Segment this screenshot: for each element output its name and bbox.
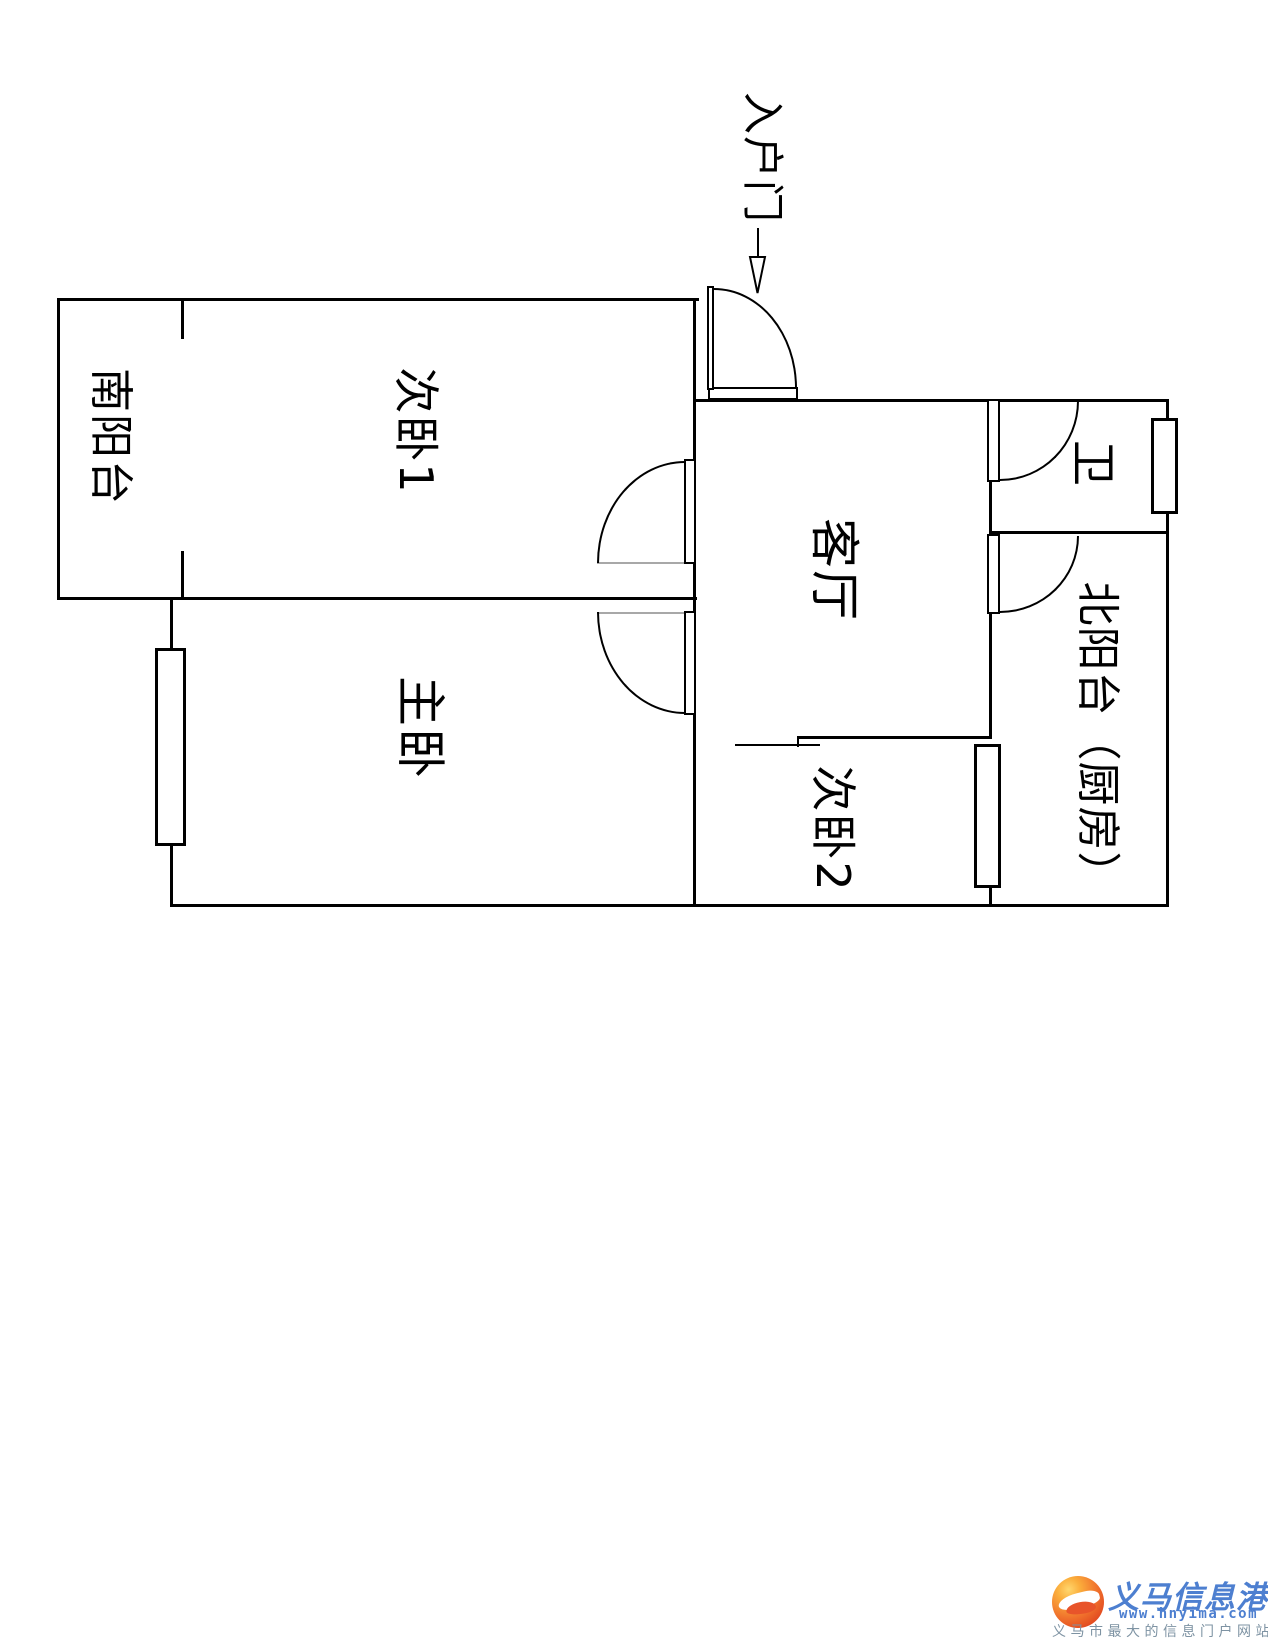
- entry-door-label: 入户门: [740, 92, 784, 224]
- floorplan-canvas: 南阳台 次卧1 主卧 客厅 卫 北阳台（厨房） 次卧2 入户门 义马信息港 ww…: [0, 0, 1268, 1641]
- door-leaf-master: [684, 611, 696, 715]
- wall-balcony-divider-upper: [181, 298, 184, 339]
- room-label-north-balcony-kitchen: 北阳台（厨房）: [1074, 582, 1120, 897]
- wall-mid-horizontal: [57, 597, 697, 600]
- wall-bedroom2-right-lower: [989, 885, 992, 907]
- entry-door-threshold: [708, 387, 798, 400]
- wall-right-lower: [1166, 511, 1169, 907]
- room-label-living-room: 客厅: [808, 518, 860, 622]
- room-label-master-bedroom: 主卧: [394, 676, 446, 780]
- door-swing-arc-master: [597, 612, 685, 714]
- wall-left: [57, 298, 60, 600]
- door-leaf-bathroom: [987, 399, 1000, 482]
- room-label-bathroom: 卫: [1068, 440, 1116, 488]
- door-swing-arc-entry: [714, 288, 797, 388]
- door-swing-arc-north-balcony: [1000, 536, 1079, 613]
- wall-master-left-upper: [170, 597, 173, 652]
- window-bathroom-east: [1151, 418, 1178, 514]
- window-master-bedroom: [155, 648, 186, 846]
- room-label-bedroom1: 次卧1: [391, 367, 439, 494]
- watermark-tagline: 义马市最大的信息门户网站: [1052, 1621, 1268, 1641]
- door-leaf-entry: [707, 286, 714, 390]
- room-label-south-balcony: 南阳台: [87, 368, 133, 506]
- wall-bottom: [170, 904, 1169, 907]
- wall-master-left-lower: [170, 842, 173, 907]
- wall-bath-balcony: [989, 531, 1169, 534]
- window-bedroom2: [974, 744, 1001, 888]
- room-label-bedroom2: 次卧2: [808, 765, 856, 892]
- wall-main-vertical: [693, 298, 696, 907]
- door-swing-arc-bedroom1: [597, 461, 685, 563]
- wall-top: [57, 298, 699, 301]
- door-leaf-north-balcony: [987, 534, 1000, 614]
- wall-balcony-divider-lower: [181, 551, 184, 600]
- wall-bedroom2-top: [797, 736, 991, 739]
- bedroom2-sliding-door-line: [735, 744, 820, 746]
- entry-arrow-icon: [748, 255, 767, 295]
- watermark-site-url: www.hnyima.com: [1119, 1606, 1258, 1622]
- door-leaf-bedroom1: [684, 459, 696, 564]
